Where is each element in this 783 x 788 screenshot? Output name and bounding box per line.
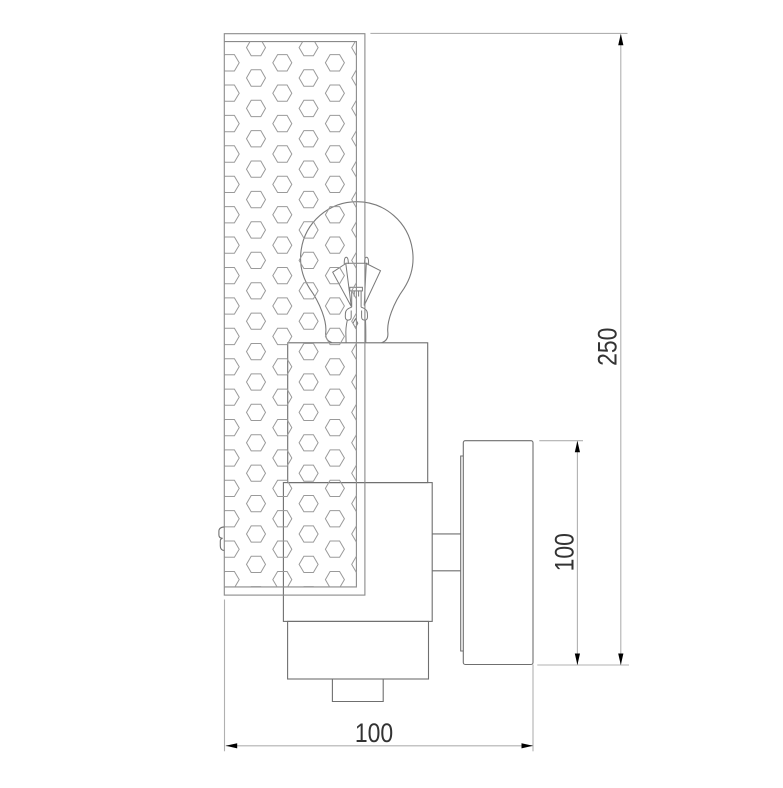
svg-text:100: 100 [550, 533, 580, 571]
svg-text:250: 250 [593, 328, 623, 366]
svg-text:100: 100 [355, 718, 393, 748]
